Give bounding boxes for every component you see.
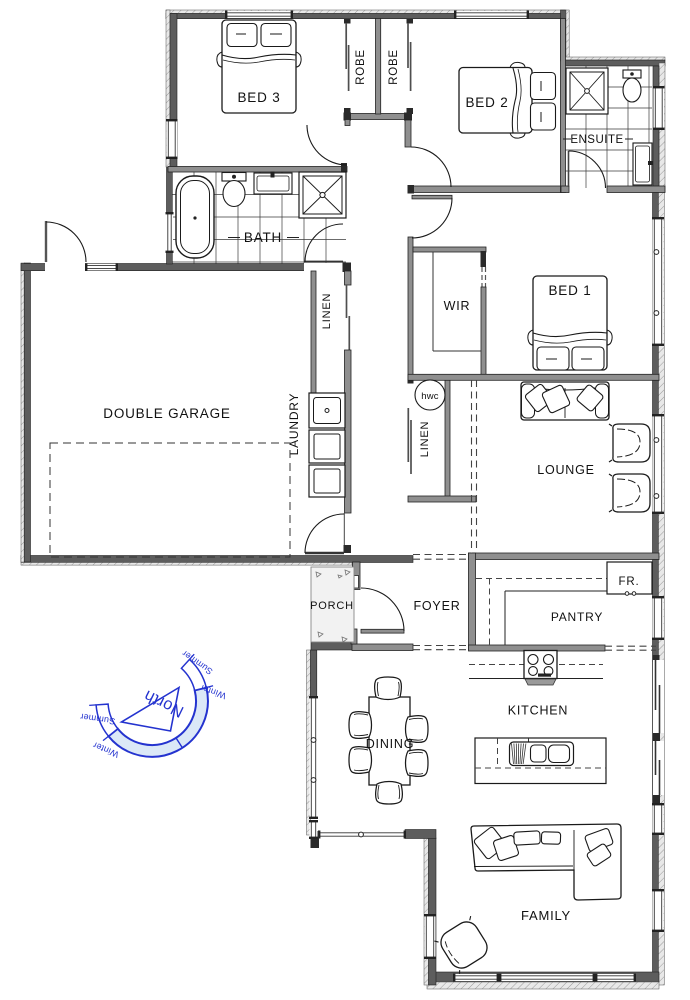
svg-text:KITCHEN: KITCHEN	[508, 704, 568, 718]
svg-text:FAMILY: FAMILY	[521, 908, 571, 923]
svg-text:BED 3: BED 3	[237, 90, 280, 105]
svg-text:DOUBLE GARAGE: DOUBLE GARAGE	[103, 406, 230, 421]
svg-text:PORCH: PORCH	[310, 600, 354, 612]
svg-text:BED 1: BED 1	[548, 283, 591, 298]
svg-text:ROBE: ROBE	[355, 49, 367, 85]
svg-text:BATH: BATH	[244, 230, 282, 245]
svg-text:ROBE: ROBE	[388, 49, 400, 85]
svg-text:LOUNGE: LOUNGE	[537, 463, 595, 477]
svg-text:LINEN: LINEN	[419, 421, 431, 457]
svg-text:BED 2: BED 2	[465, 95, 508, 110]
svg-text:FR.: FR.	[619, 576, 640, 588]
svg-text:DINING: DINING	[366, 737, 415, 751]
svg-text:FOYER: FOYER	[413, 599, 460, 613]
svg-text:LINEN: LINEN	[321, 293, 333, 329]
svg-text:PANTRY: PANTRY	[551, 610, 603, 624]
svg-text:LAUNDRY: LAUNDRY	[287, 393, 301, 456]
svg-text:WIR: WIR	[444, 299, 471, 313]
svg-text:ENSUITE: ENSUITE	[570, 134, 623, 146]
svg-text:hwc: hwc	[421, 391, 439, 402]
